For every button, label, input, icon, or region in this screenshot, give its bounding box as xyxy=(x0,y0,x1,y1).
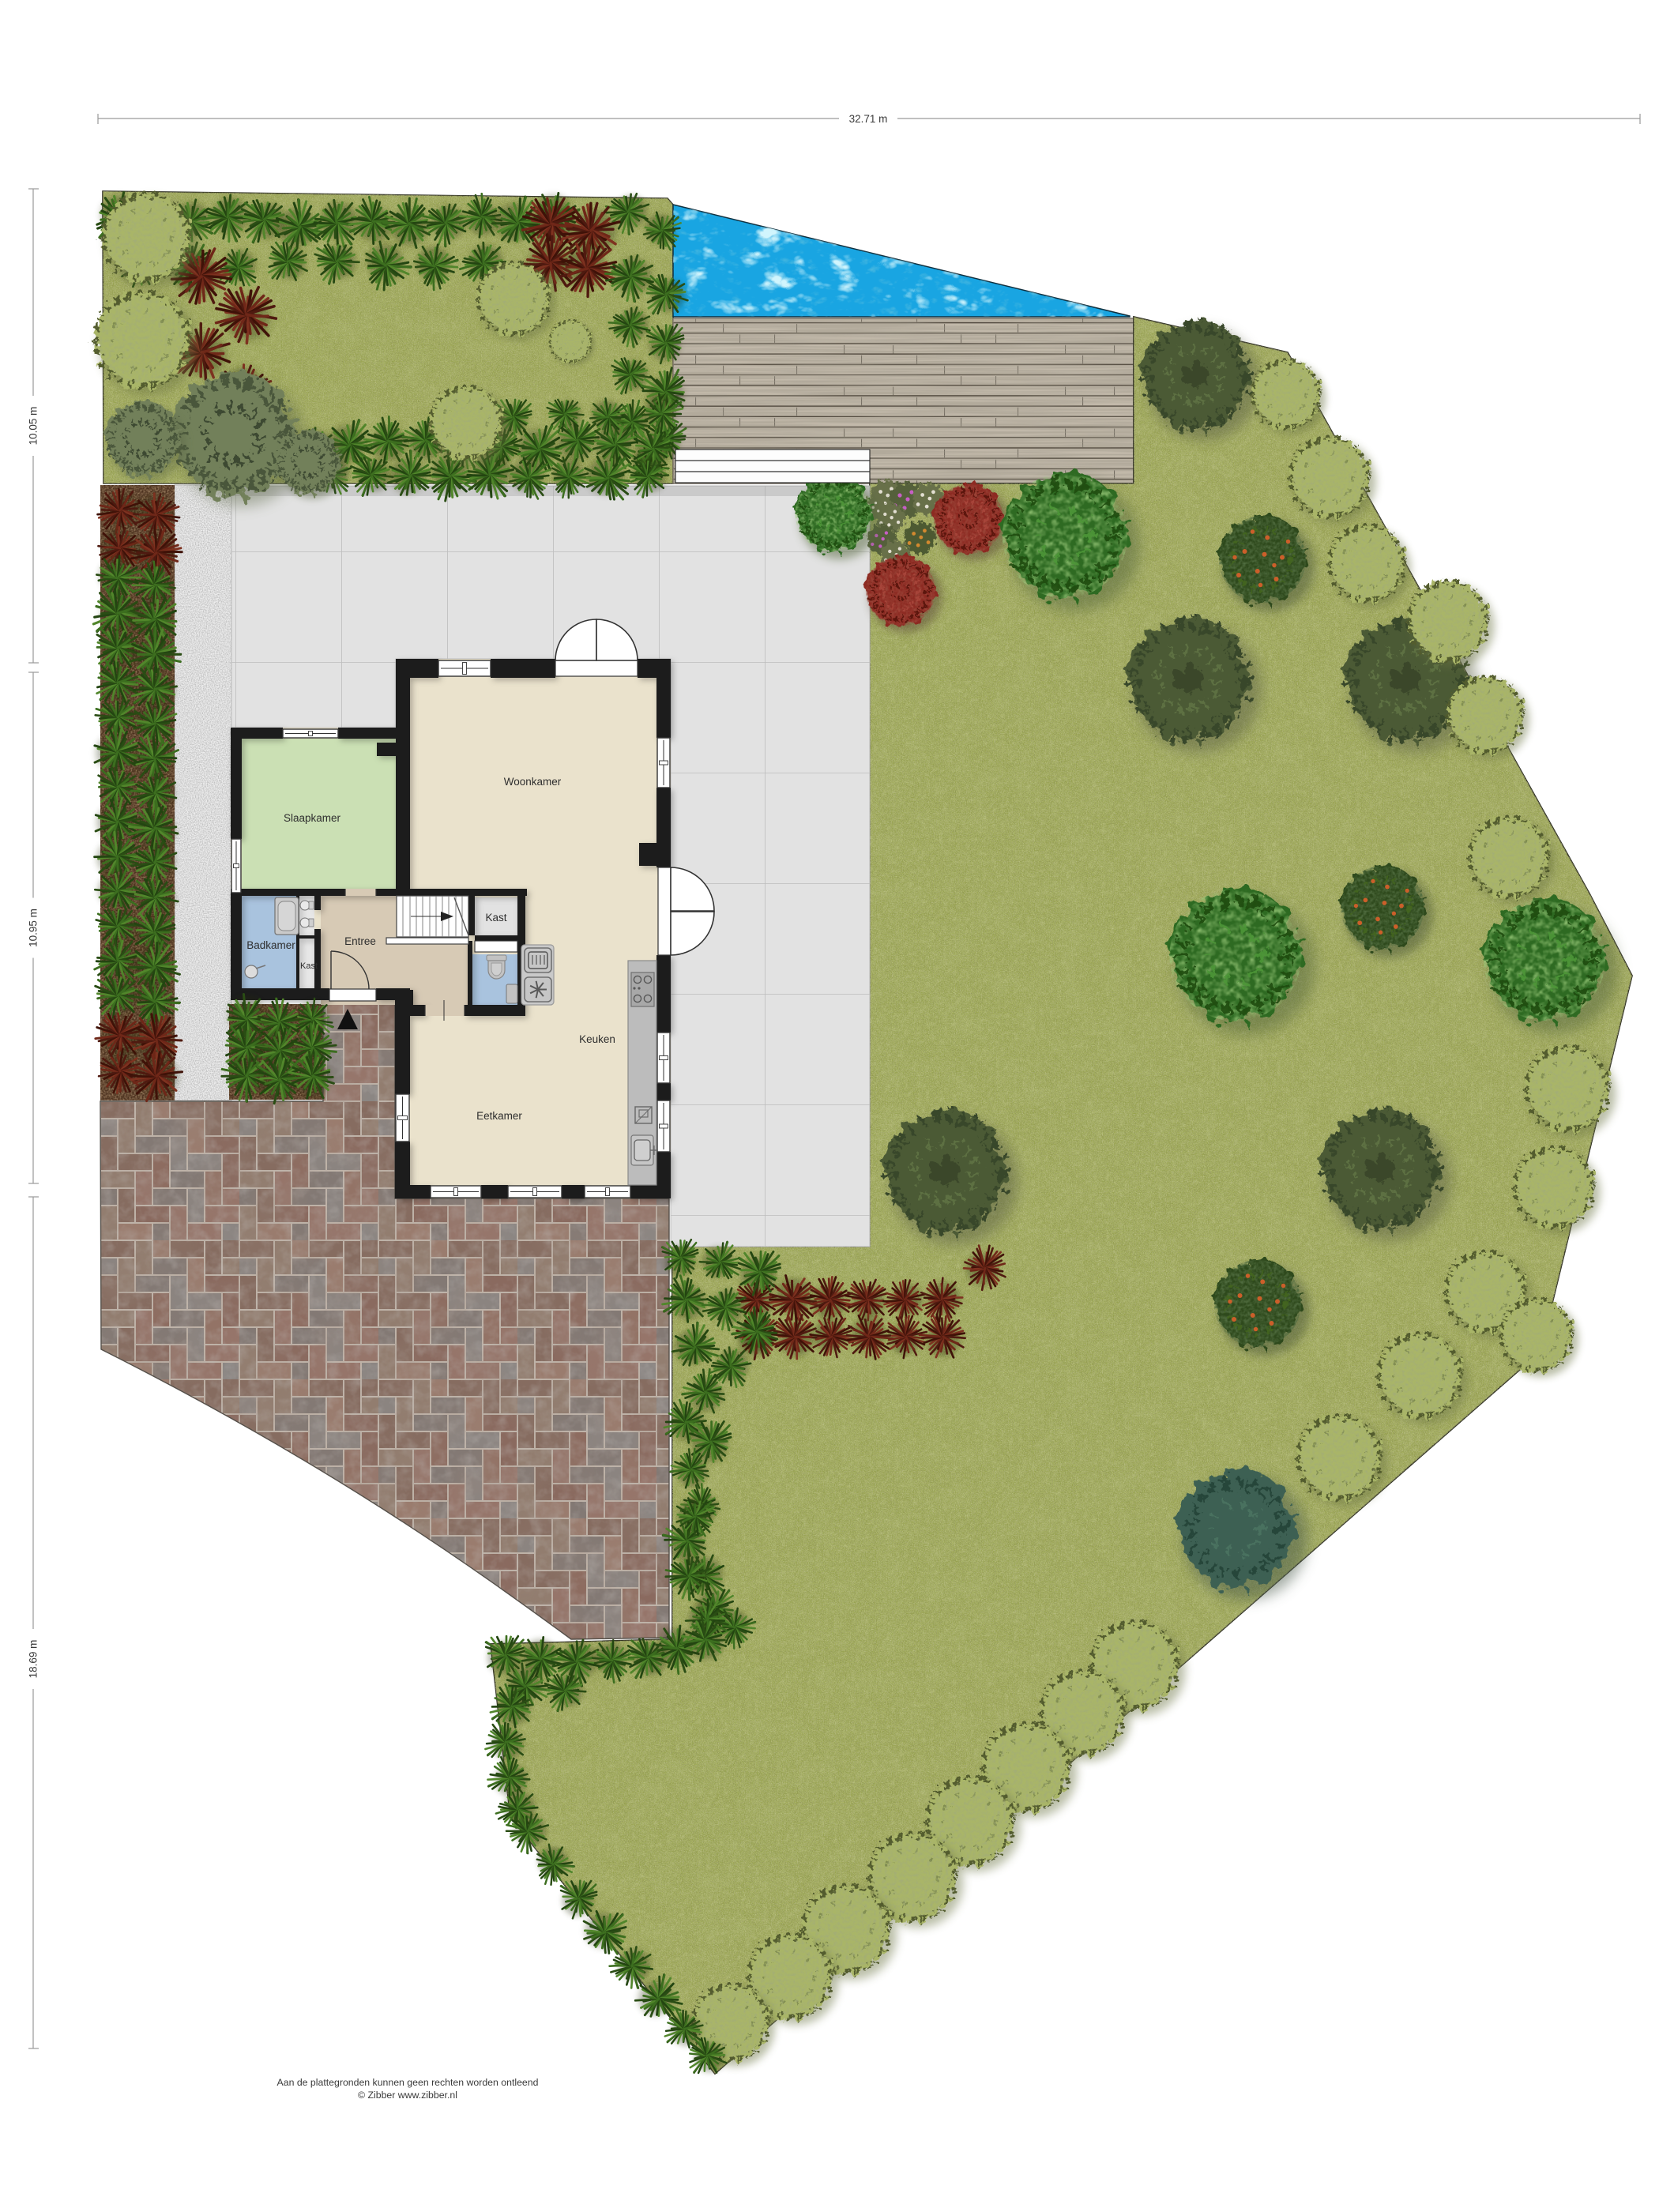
svg-text:18.69 m: 18.69 m xyxy=(28,1640,39,1679)
svg-text:Aan de plattegronden kunnen ge: Aan de plattegronden kunnen geen rechten… xyxy=(277,2077,539,2088)
svg-text:32.71 m: 32.71 m xyxy=(849,113,888,125)
svg-text:Kast: Kast xyxy=(485,912,506,924)
svg-text:Slaapkamer: Slaapkamer xyxy=(284,812,341,824)
svg-text:10.95 m: 10.95 m xyxy=(28,908,39,947)
svg-text:Kast: Kast xyxy=(300,961,318,971)
svg-text:Badkamer: Badkamer xyxy=(246,939,295,951)
svg-text:10.05 m: 10.05 m xyxy=(28,407,39,446)
svg-text:Keuken: Keuken xyxy=(579,1033,615,1045)
svg-text:Entree: Entree xyxy=(344,935,376,947)
svg-text:Eetkamer: Eetkamer xyxy=(476,1110,522,1122)
svg-text:Woonkamer: Woonkamer xyxy=(504,776,562,788)
svg-text:© Zibber www.zibber.nl: © Zibber www.zibber.nl xyxy=(358,2090,457,2101)
